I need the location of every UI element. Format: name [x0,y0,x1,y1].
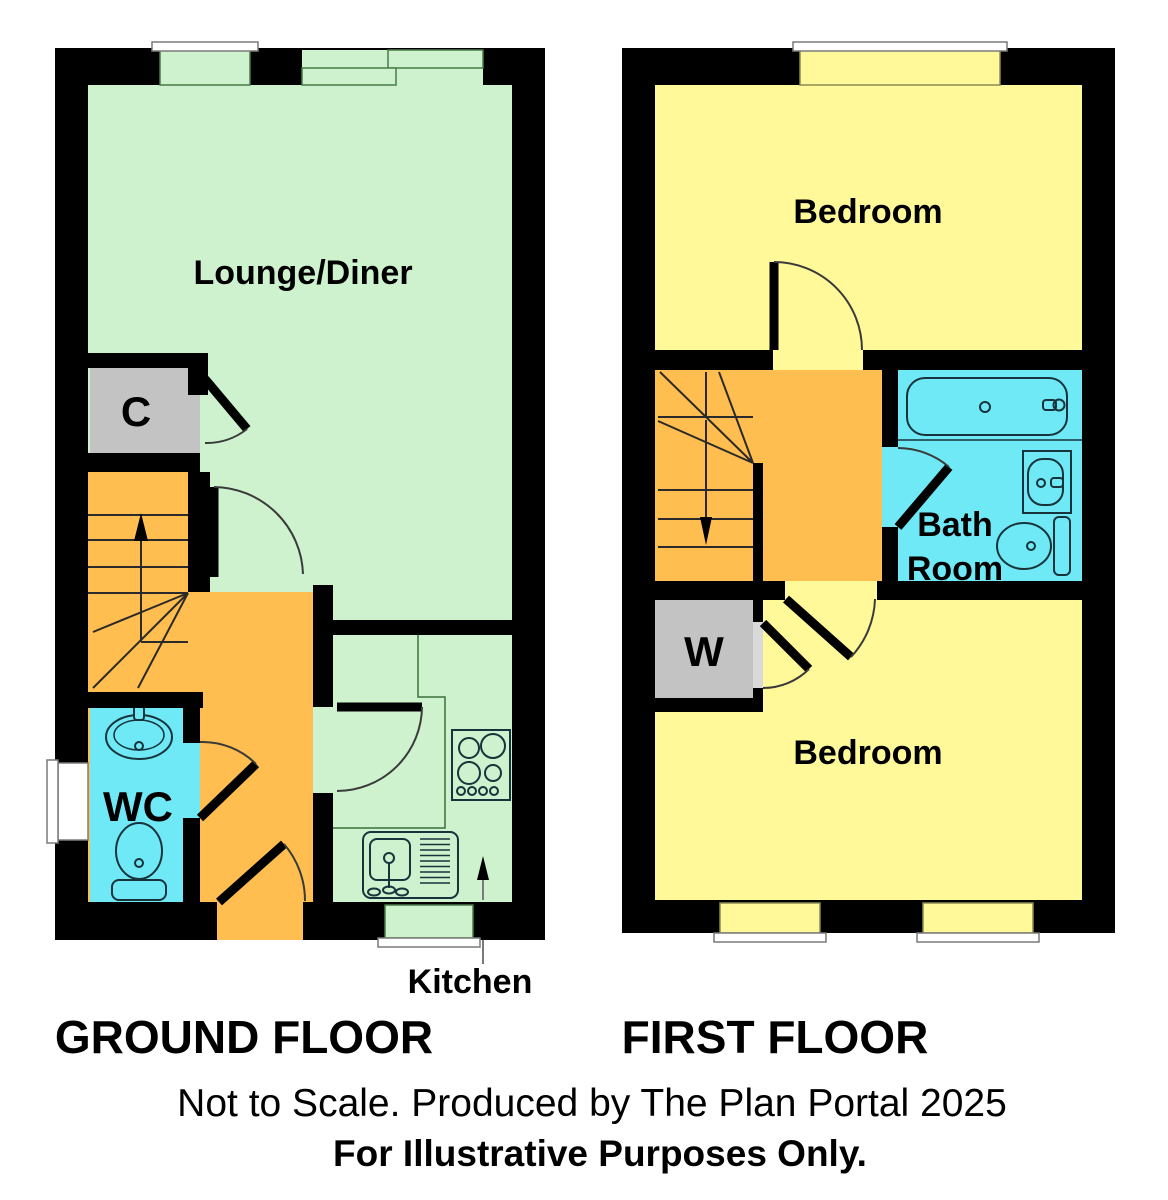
bedroom-back-window-pane [720,903,820,933]
basin-tap [1051,478,1063,487]
patio-door-panel [302,68,396,85]
first-floor-plan: Bedroom Bath Room W Bedroom [622,42,1115,942]
wall-bedroom-front-right [863,350,1082,370]
bedroom-back-window2-frame [917,933,1039,942]
wall-wc-right-upper [183,708,200,743]
closet-c-label: C [121,388,151,435]
wc-window-pane [58,763,88,840]
patio-door-panel [388,50,483,68]
bedroom-back-window-frame [714,933,826,942]
bedroom-back-window2-pane [923,903,1033,933]
wall-bottom [622,900,1115,933]
bathroom-label-line2: Room [907,550,1003,588]
wall-hall-kitchen-upper [313,585,333,707]
wall-lounge-kitchen [313,620,512,635]
lounge-window-frame [152,42,258,51]
wall-hall-kitchen-lower [313,793,333,905]
lounge-diner-label: Lounge/Diner [193,254,412,292]
wall-closet-bottom [88,453,200,472]
wall-bathroom-lower [882,527,898,583]
wall-wc-right-lower [183,818,200,908]
floor-plan-page: Lounge/Diner C WC Kitchen [0,0,1168,1200]
bedroom-front-window-pane [800,50,1000,85]
wall-right [1082,48,1115,933]
front-door-opening [217,902,303,940]
wc-basin-tap [134,706,144,720]
wall-bathroom-upper [882,370,898,447]
wc-door-opening [183,743,200,818]
wall-stairs-right [188,472,210,592]
wc-toilet-cistern [112,880,166,900]
ground-floor-plan: Lounge/Diner C WC Kitchen [47,42,545,1001]
wall-stairs-landing [753,463,763,581]
bathroom-door-opening [882,447,898,527]
wall-right [512,48,545,940]
footer-disclaimer-line2: For Illustrative Purposes Only. [333,1133,867,1174]
footer-disclaimer-line1: Not to Scale. Produced by The Plan Porta… [177,1082,1007,1125]
kitchen-label: Kitchen [408,963,533,1001]
wc-window-frame [47,760,58,843]
wall-wc-top [88,692,203,708]
wc-label: WC [103,783,173,830]
wall-closet-jamb [188,353,208,395]
floor-plan-drawing: Lounge/Diner C WC Kitchen [0,0,1168,1200]
bedroom-back-door-opening [785,581,877,600]
wardrobe-door-opening [753,622,763,688]
bedroom-front-door-opening [773,350,863,370]
ground-floor-title: GROUND FLOOR [55,1011,433,1063]
wardrobe-w-label: W [684,628,724,675]
toilet-cistern [1054,517,1070,575]
kitchen-window-frame [378,938,480,947]
kitchen-window-pane [385,905,473,938]
kitchen-door-opening [313,707,333,793]
bathroom-label-line1: Bath [917,506,993,544]
captions: GROUND FLOOR FIRST FLOOR Not to Scale. P… [55,1011,1007,1174]
wall-wardrobe-bottom [655,698,763,712]
first-floor-title: FIRST FLOOR [622,1011,929,1063]
bedroom-front-window-frame [793,42,1007,51]
lounge-window-pane [160,50,250,85]
wall-landing-left [655,581,785,600]
bedroom-front-label: Bedroom [793,193,942,231]
wall-bedroom-front-left [655,350,773,370]
wall-wardrobe-stub-top [753,600,763,622]
bedroom-back-label: Bedroom [793,734,942,772]
wall-left [622,48,655,933]
